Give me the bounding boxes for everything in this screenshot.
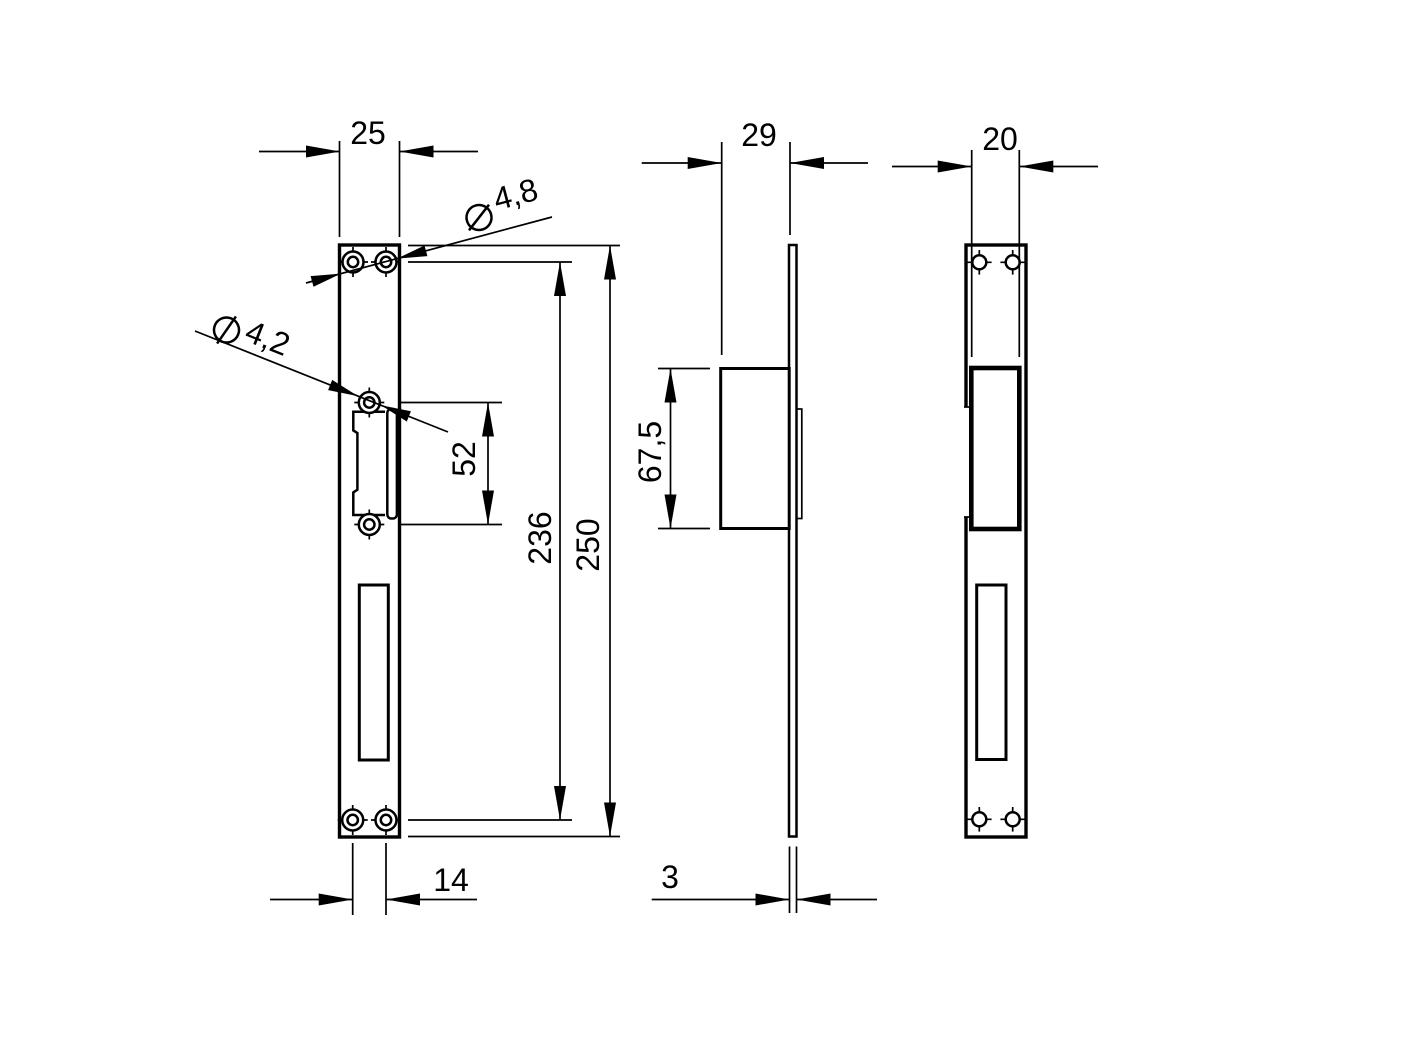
dim-label-29: 29 bbox=[741, 117, 777, 153]
diameter-callout-text: 4,2 bbox=[209, 301, 295, 368]
hole bbox=[1006, 812, 1020, 826]
faceplate-slot bbox=[359, 585, 388, 760]
dim-label-20: 20 bbox=[982, 121, 1018, 157]
side-plate-outline bbox=[789, 245, 797, 837]
arrowhead bbox=[554, 786, 566, 820]
dim-label-14: 14 bbox=[433, 862, 469, 898]
dimension-box-height: 67,5 bbox=[632, 369, 710, 529]
arrowhead bbox=[688, 157, 722, 169]
dimension-corner-hole-span: 236 bbox=[408, 262, 572, 820]
diameter-symbol-slash bbox=[464, 205, 494, 231]
hole-inner bbox=[348, 257, 358, 267]
arrowhead bbox=[554, 262, 566, 296]
dim-label-4-8: 4,8 bbox=[489, 171, 541, 217]
hole-inner bbox=[381, 815, 391, 825]
arrowhead bbox=[604, 246, 616, 280]
arrowhead bbox=[797, 894, 831, 906]
dim-label-25: 25 bbox=[350, 115, 386, 151]
side-keeper-box bbox=[721, 369, 790, 529]
dimension-bottom-hole-spacing: 14 bbox=[270, 843, 477, 915]
strike-plate-technical-drawing: 25 14 250 236 52 bbox=[0, 0, 1417, 1063]
dim-label-236: 236 bbox=[522, 511, 558, 564]
arrowhead bbox=[604, 803, 616, 837]
hole bbox=[972, 812, 986, 826]
leader-line bbox=[195, 331, 448, 432]
dim-label-3: 3 bbox=[661, 859, 679, 895]
hole-inner bbox=[364, 519, 374, 529]
arrowhead bbox=[482, 491, 494, 525]
side-strike-lip bbox=[797, 409, 802, 519]
dimension-plate-thickness: 3 bbox=[652, 847, 877, 914]
arrowhead bbox=[665, 495, 677, 529]
arrowhead bbox=[400, 146, 434, 158]
edge-break-mask bbox=[962, 407, 968, 517]
arrowhead bbox=[306, 146, 340, 158]
dim-label-52: 52 bbox=[446, 441, 482, 477]
hole bbox=[1006, 255, 1020, 269]
arrowhead bbox=[1019, 161, 1053, 173]
arrowhead bbox=[397, 246, 427, 259]
arrowhead bbox=[665, 369, 677, 403]
back-keeper-box bbox=[971, 368, 1019, 529]
strike-lip bbox=[387, 409, 397, 519]
arrowhead bbox=[756, 894, 790, 906]
arrowhead bbox=[386, 894, 420, 906]
dimension-middle-hole-span: 52 bbox=[398, 403, 502, 525]
back-slot bbox=[977, 585, 1006, 760]
technical-drawing-page: 25 14 250 236 52 bbox=[0, 0, 1417, 1063]
callout-diameter-4-2: 4,2 bbox=[195, 301, 448, 432]
hole bbox=[972, 255, 986, 269]
diameter-callout-text: 4,8 bbox=[458, 171, 543, 233]
arrowhead bbox=[311, 274, 341, 287]
arrowhead bbox=[319, 894, 353, 906]
dim-label-4-2: 4,2 bbox=[240, 313, 295, 363]
side-view bbox=[721, 245, 802, 837]
dim-label-250: 250 bbox=[570, 518, 606, 571]
dim-label-67-5: 67,5 bbox=[632, 421, 668, 483]
arrowhead bbox=[938, 161, 972, 173]
front-view bbox=[338, 245, 401, 837]
arrowhead bbox=[790, 157, 824, 169]
dimension-side-depth: 29 bbox=[642, 117, 868, 355]
arrowhead bbox=[482, 403, 494, 437]
hole-inner bbox=[348, 815, 358, 825]
dimension-front-width: 25 bbox=[259, 115, 478, 237]
dimension-plate-height: 250 bbox=[408, 246, 620, 837]
